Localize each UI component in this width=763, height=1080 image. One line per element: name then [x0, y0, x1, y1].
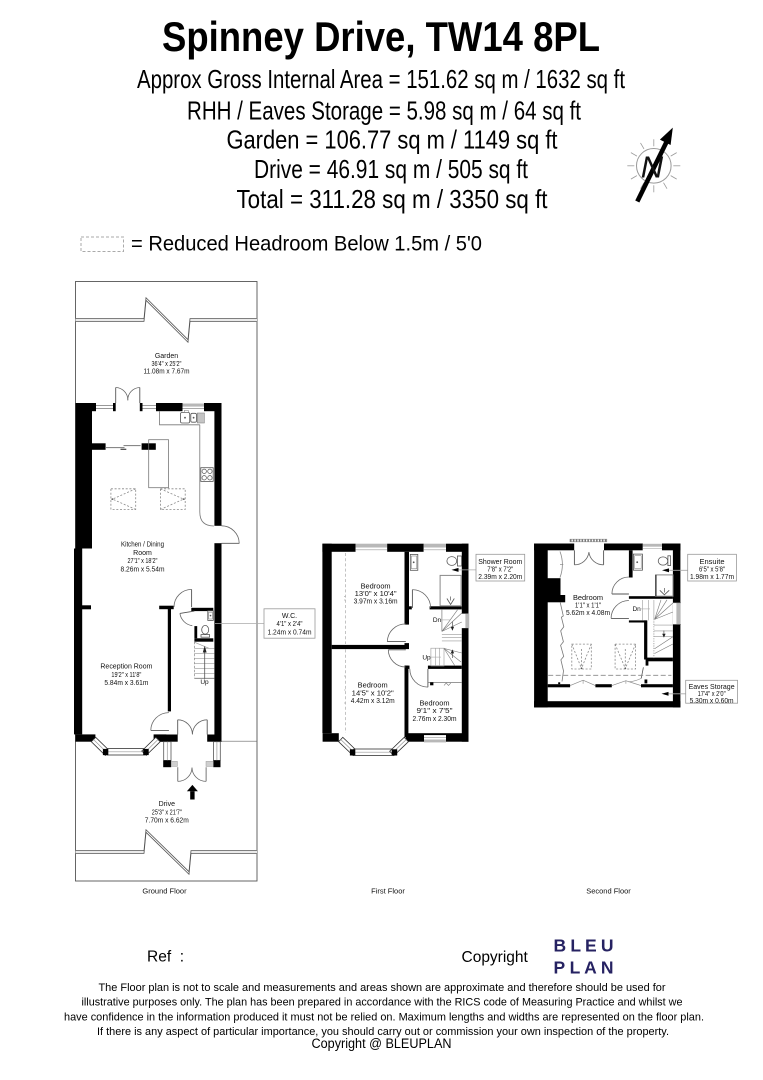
svg-text:= Reduced Headroom Below 1.5m: = Reduced Headroom Below 1.5m / 5'0 — [131, 233, 482, 256]
svg-text:N: N — [641, 150, 664, 185]
svg-text:Ground Floor: Ground Floor — [142, 887, 187, 896]
svg-text:Dn: Dn — [632, 606, 641, 613]
svg-text:1.98m x 1.77m: 1.98m x 1.77m — [690, 574, 734, 581]
svg-text:2.76m x 2.30m: 2.76m x 2.30m — [413, 716, 457, 723]
svg-text:Garden = 106.77 sq m / 1149 sq: Garden = 106.77 sq m / 1149 sq ft — [227, 125, 559, 155]
svg-text:W.C.: W.C. — [282, 613, 297, 620]
svg-text:5.30m x 0.60m: 5.30m x 0.60m — [690, 698, 734, 705]
svg-text:1.24m x 0.74m: 1.24m x 0.74m — [268, 630, 312, 637]
svg-text:Bedroom: Bedroom — [361, 584, 391, 591]
svg-text:B L E U: B L E U — [554, 936, 614, 956]
svg-text:7'8" x 7'2": 7'8" x 7'2" — [487, 566, 513, 573]
svg-text:1'1" x 1'1": 1'1" x 1'1" — [575, 602, 601, 609]
svg-text:36'4" x 25'2": 36'4" x 25'2" — [152, 361, 182, 368]
svg-text:Drive: Drive — [159, 801, 175, 808]
svg-text:8.26m x 5.54m: 8.26m x 5.54m — [121, 566, 165, 573]
svg-text:4'1" x 2'4": 4'1" x 2'4" — [277, 621, 303, 628]
svg-text:11.08m x 7.67m: 11.08m x 7.67m — [144, 368, 190, 375]
svg-text:Bedroom: Bedroom — [573, 595, 603, 602]
svg-text:RHH / Eaves Storage = 5.98 sq: RHH / Eaves Storage = 5.98 sq m / 64 sq … — [187, 96, 582, 126]
svg-text:Dn: Dn — [433, 617, 442, 624]
svg-text:Copyright @ BLEUPLAN: Copyright @ BLEUPLAN — [312, 1036, 452, 1051]
svg-text:7.70m x 6.62m: 7.70m x 6.62m — [145, 818, 189, 825]
svg-text:Reception Room: Reception Room — [100, 664, 152, 671]
svg-text:have confidence in the informa: have confidence in the information produ… — [64, 1011, 704, 1023]
svg-text:Eaves Storage: Eaves Storage — [689, 682, 735, 691]
svg-text:6'5" x 5'8": 6'5" x 5'8" — [699, 566, 725, 573]
svg-text:Bedroom: Bedroom — [420, 701, 450, 708]
svg-text:P L A N: P L A N — [554, 957, 614, 977]
svg-text:4.42m x 3.12m: 4.42m x 3.12m — [351, 698, 395, 705]
svg-text:25'3" x 21'7": 25'3" x 21'7" — [152, 809, 182, 816]
svg-text:Second Floor: Second Floor — [586, 887, 631, 896]
svg-text:Garden: Garden — [155, 353, 178, 360]
svg-text:5.62m x 4.08m: 5.62m x 4.08m — [566, 610, 610, 617]
svg-text:27'1" x 18'2": 27'1" x 18'2" — [128, 558, 158, 565]
svg-text:Drive = 46.91 sq m / 505 sq ft: Drive = 46.91 sq m / 505 sq ft — [254, 154, 529, 184]
svg-text:Approx Gross Internal Area = 1: Approx Gross Internal Area = 151.62 sq m… — [137, 64, 626, 94]
svg-text:5.84m x 3.61m: 5.84m x 3.61m — [104, 680, 148, 687]
svg-text:13'0" x 10'4": 13'0" x 10'4" — [355, 591, 398, 598]
svg-text:Copyright: Copyright — [462, 949, 529, 966]
svg-text:9'1" x 7'5": 9'1" x 7'5" — [417, 708, 454, 715]
svg-text:Room: Room — [133, 550, 152, 557]
svg-text:Up: Up — [200, 679, 209, 686]
svg-text:Kitchen / Dining: Kitchen / Dining — [121, 542, 164, 549]
svg-text:Up: Up — [422, 655, 431, 662]
svg-text:Ensuite: Ensuite — [699, 557, 724, 566]
svg-text:Bedroom: Bedroom — [358, 683, 388, 690]
svg-text:2.39m x 2.20m: 2.39m x 2.20m — [478, 574, 522, 581]
svg-text:14'5" x 10'2": 14'5" x 10'2" — [352, 690, 395, 697]
svg-text:illustrative purposes only. Th: illustrative purposes only. The plan has… — [82, 997, 683, 1009]
svg-text:19'2" x 11'8": 19'2" x 11'8" — [111, 672, 141, 679]
svg-text:First Floor: First Floor — [371, 887, 405, 896]
svg-text:Ref :: Ref : — [147, 949, 184, 966]
svg-text:Spinney Drive, TW14 8PL: Spinney Drive, TW14 8PL — [162, 13, 600, 60]
svg-text:Shower Room: Shower Room — [478, 557, 522, 566]
svg-text:Total = 311.28 sq m / 3350 sq: Total = 311.28 sq m / 3350 sq ft — [237, 184, 549, 214]
svg-text:3.97m x 3.16m: 3.97m x 3.16m — [354, 599, 398, 606]
svg-text:The Floor plan is not to scale: The Floor plan is not to scale and measu… — [99, 982, 666, 994]
